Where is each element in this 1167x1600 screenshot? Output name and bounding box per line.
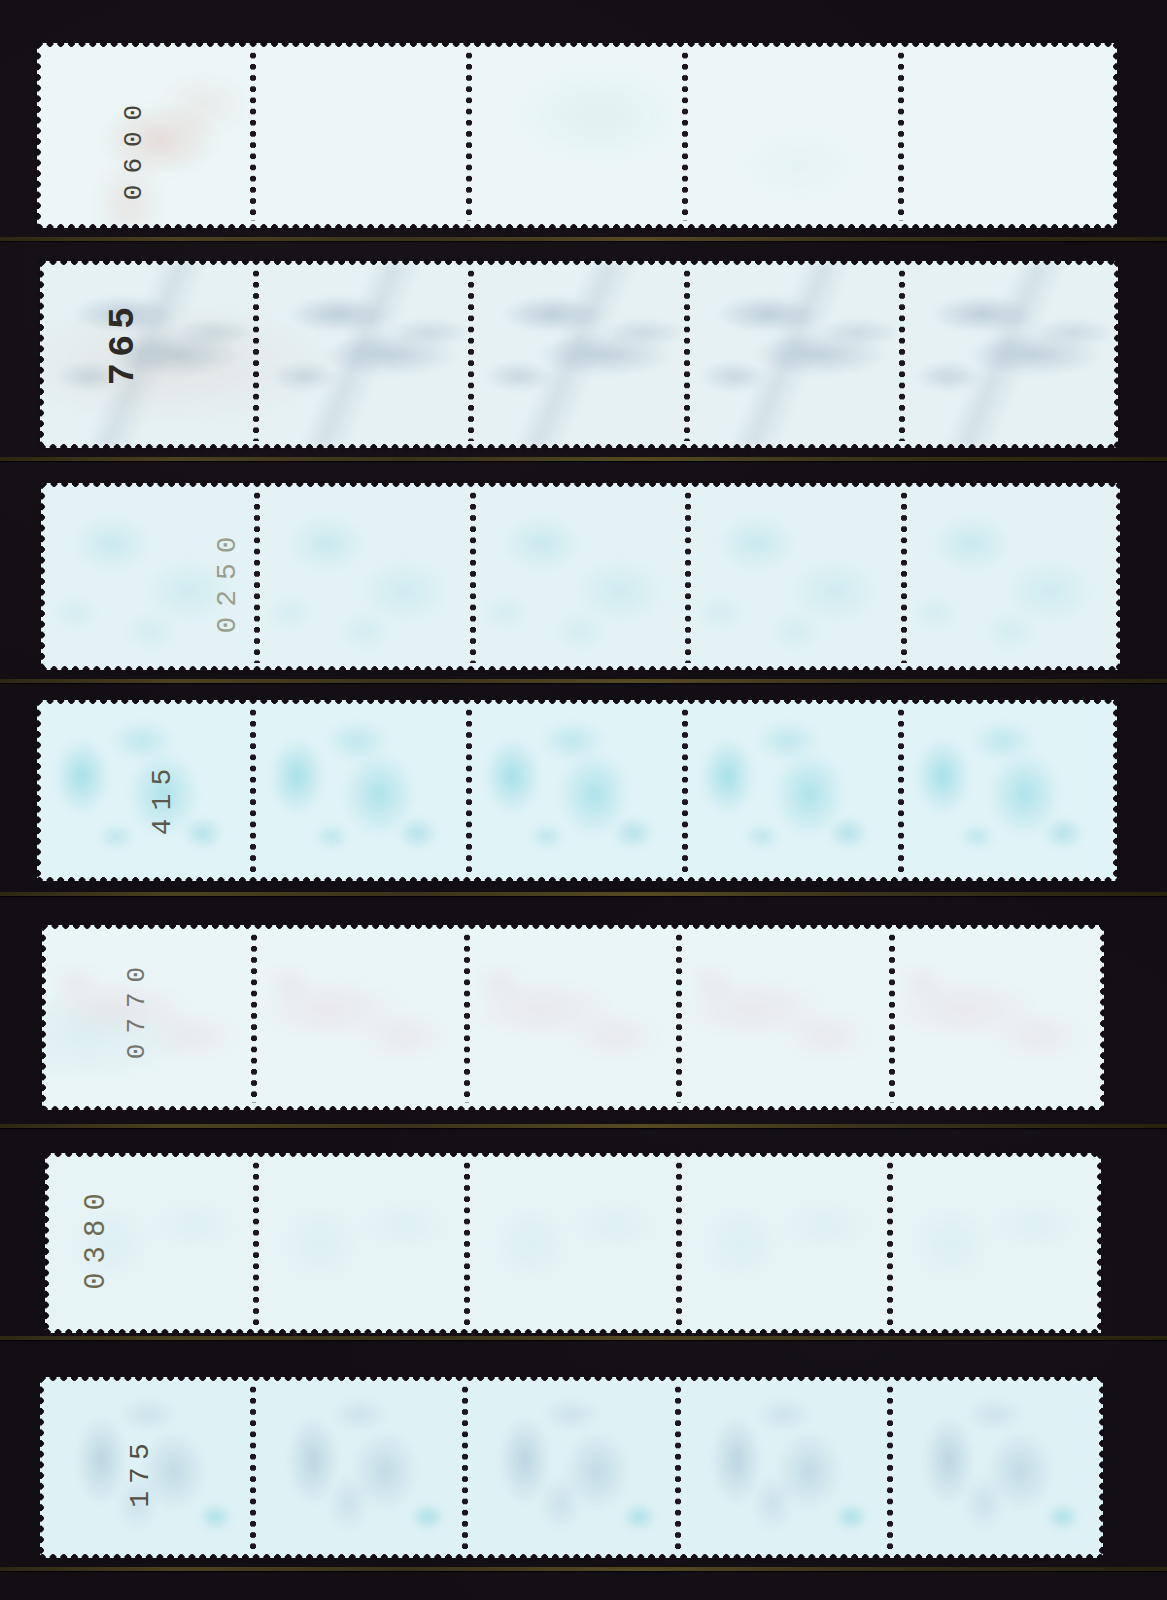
stamp-strip: 0770 bbox=[42, 925, 1104, 1110]
perforation-column bbox=[465, 707, 473, 874]
perforation-column bbox=[674, 1384, 682, 1551]
design-showthrough bbox=[39, 702, 1115, 879]
roll-number: 0600 bbox=[121, 94, 147, 200]
perforation-column bbox=[253, 490, 261, 663]
perforation-column bbox=[681, 50, 689, 221]
roll-number: 0250 bbox=[214, 526, 242, 633]
roll-number: 765 bbox=[105, 301, 142, 386]
perforation-column bbox=[888, 932, 896, 1103]
roll-number: 0770 bbox=[124, 957, 150, 1059]
perforation-column bbox=[465, 50, 473, 221]
perforation-column bbox=[252, 268, 260, 441]
stamp-strip: 0250 bbox=[41, 483, 1120, 670]
roll-number: 415 bbox=[149, 761, 177, 835]
perforation-column bbox=[249, 1384, 257, 1551]
perforation-column bbox=[675, 1160, 683, 1326]
design-showthrough bbox=[43, 485, 1118, 668]
roll-number: 0380 bbox=[82, 1184, 111, 1290]
mount-edge-line bbox=[0, 457, 1167, 461]
design-showthrough bbox=[47, 1155, 1099, 1331]
perforation-column bbox=[897, 50, 905, 221]
mount-edge-line bbox=[0, 237, 1167, 241]
stamp-strip: 0600 bbox=[37, 43, 1117, 228]
perforation-column bbox=[897, 707, 905, 874]
perforation-column bbox=[469, 490, 477, 663]
perforation-column bbox=[249, 50, 257, 221]
perforation-column bbox=[249, 707, 257, 874]
perforation-column bbox=[898, 268, 906, 441]
design-showthrough bbox=[42, 1379, 1101, 1556]
mount-edge-line bbox=[0, 1336, 1167, 1340]
stamp-strip: 0380 bbox=[45, 1153, 1101, 1333]
perforation-column bbox=[900, 490, 908, 663]
roll-number: 175 bbox=[127, 1436, 155, 1507]
mount-edge-line bbox=[0, 679, 1167, 683]
design-showthrough bbox=[44, 927, 1102, 1108]
perforation-column bbox=[463, 1160, 471, 1326]
stamp-strip: 765 bbox=[40, 261, 1118, 448]
perforation-column bbox=[467, 268, 475, 441]
mount-edge-line bbox=[0, 892, 1167, 896]
stamp-strip: 415 bbox=[37, 700, 1117, 881]
stamp-strip: 175 bbox=[40, 1377, 1103, 1558]
perforation-column bbox=[886, 1160, 894, 1326]
perforation-column bbox=[683, 268, 691, 441]
album-page-background: 0600 765 0250 415 bbox=[0, 0, 1167, 1600]
perforation-column bbox=[675, 932, 683, 1103]
mount-edge-line bbox=[0, 1567, 1167, 1571]
design-showthrough bbox=[42, 263, 1116, 446]
perforation-column bbox=[684, 490, 692, 663]
perforation-column bbox=[463, 932, 471, 1103]
mount-edge-line bbox=[0, 1124, 1167, 1128]
perforation-column bbox=[252, 1160, 260, 1326]
perforation-column bbox=[681, 707, 689, 874]
perforation-column bbox=[886, 1384, 894, 1551]
design-showthrough bbox=[39, 45, 1115, 226]
perforation-column bbox=[461, 1384, 469, 1551]
perforation-column bbox=[250, 932, 258, 1103]
